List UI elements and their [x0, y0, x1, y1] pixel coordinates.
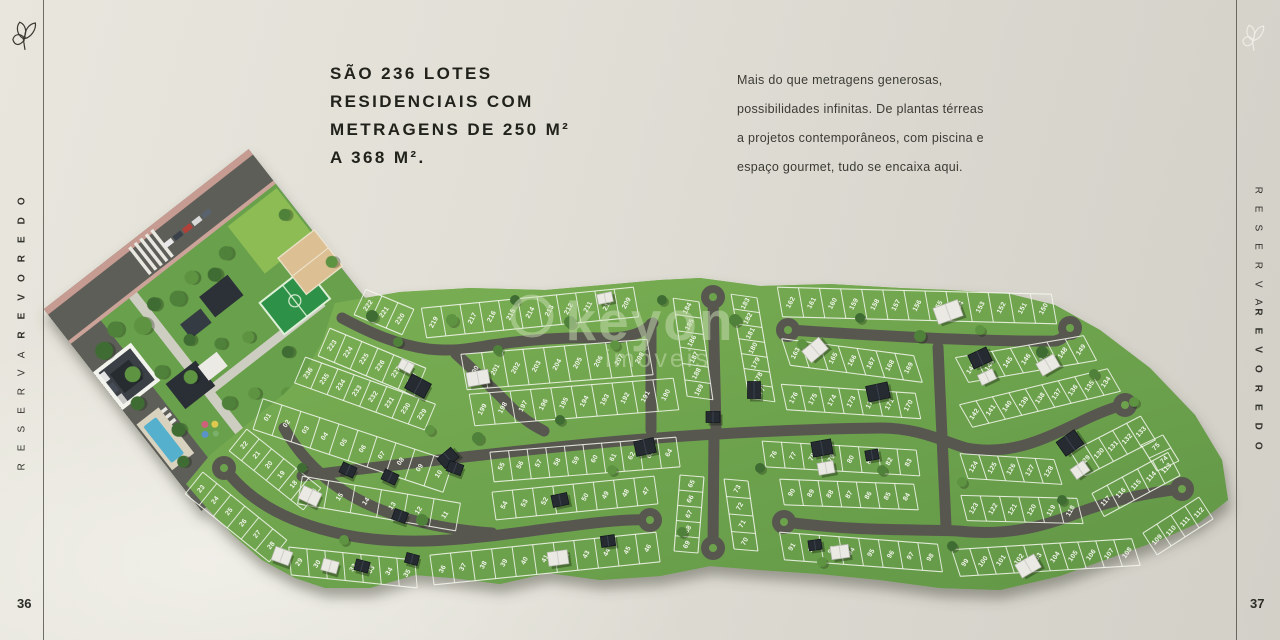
leaf-logo-icon	[12, 20, 38, 52]
left-rail-revoredo: REVOREDO	[17, 185, 28, 338]
tree	[957, 477, 967, 487]
tree	[366, 310, 378, 322]
tree	[797, 339, 807, 349]
page-number-left: 36	[17, 596, 31, 611]
paragraph-line: Mais do que metragens generosas,	[737, 66, 984, 95]
house-marker	[811, 438, 836, 460]
tree	[555, 415, 565, 425]
tree	[493, 345, 503, 355]
tree	[855, 313, 865, 323]
headline-line: RESIDENCIAIS COM	[330, 88, 570, 116]
tree	[877, 465, 887, 475]
tree	[446, 314, 458, 326]
watermark-subtitle: imóveis	[605, 345, 711, 373]
tree	[1036, 346, 1048, 358]
page-number-right: 37	[1250, 596, 1264, 611]
watermark-brand: keyon	[566, 290, 735, 352]
headline-line: A 368 M².	[330, 144, 570, 172]
paragraph-line: a projetos contemporâneos, com piscina e	[737, 124, 984, 153]
tree	[914, 330, 926, 342]
tree	[947, 541, 957, 551]
tree	[472, 432, 484, 444]
tree	[975, 325, 985, 335]
house-marker	[748, 382, 764, 402]
masterplan-illustration: 2222212202192182172162152142132122112102…	[0, 0, 1280, 640]
tree	[607, 465, 617, 475]
right-rail-reserva: RESERVA	[1253, 187, 1264, 318]
left-rail-reserva: RESERVA	[17, 340, 28, 471]
paragraph-line: possibilidades infinitas. De plantas tér…	[737, 95, 984, 124]
tree	[677, 527, 687, 537]
headline: SÃO 236 LOTES RESIDENCIAIS COM METRAGENS…	[330, 60, 570, 172]
tree	[1129, 397, 1139, 407]
headline-line: METRAGENS DE 250 M²	[330, 116, 570, 144]
road	[713, 434, 714, 546]
site-area: 2222212202192182172162152142132122112102…	[44, 147, 1228, 590]
tree	[339, 535, 349, 545]
paragraph-line: espaço gourmet, tudo se encaixa aqui.	[737, 153, 984, 182]
tree	[817, 557, 827, 567]
right-rail-revoredo: REVOREDO	[1253, 308, 1264, 461]
tree	[425, 425, 435, 435]
tree	[393, 337, 403, 347]
tree	[297, 463, 307, 473]
tree	[416, 514, 428, 526]
leaf-logo-icon	[1242, 22, 1266, 54]
body-paragraph: Mais do que metragens generosas, possibi…	[737, 66, 984, 182]
tree	[755, 463, 765, 473]
tree	[1057, 495, 1067, 505]
headline-line: SÃO 236 LOTES	[330, 60, 570, 88]
left-margin-rule	[43, 0, 44, 640]
brochure-spread: 2222212202192182172162152142132122112102…	[0, 0, 1280, 640]
right-margin-rule	[1236, 0, 1237, 640]
tree	[1089, 369, 1099, 379]
